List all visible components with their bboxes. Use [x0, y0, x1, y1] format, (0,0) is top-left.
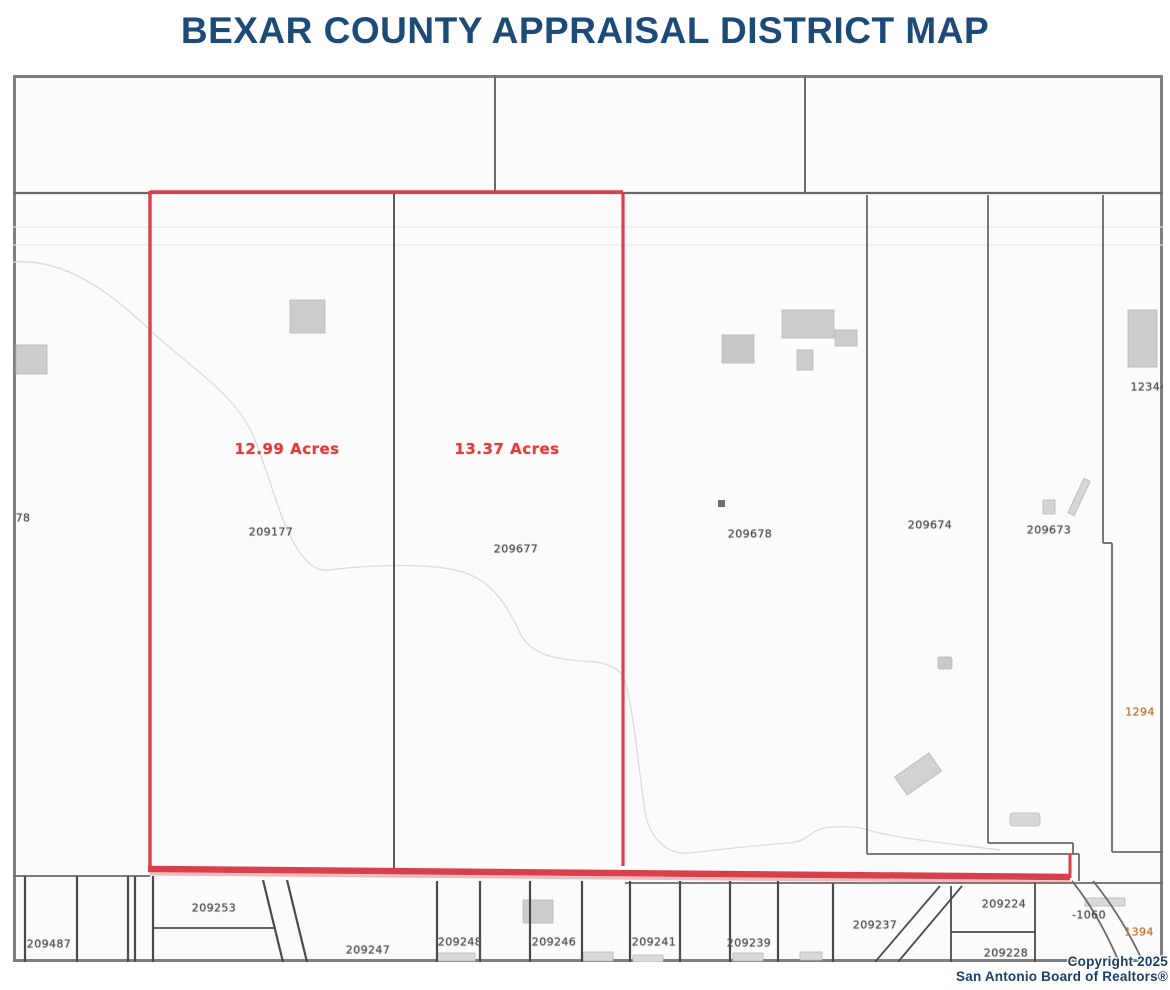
parcel-label-209247: 209247: [346, 944, 390, 957]
parcel-label-209246: 209246: [532, 936, 576, 949]
appraisal-district-map: 7820917720967720967820967420967312344129…: [13, 75, 1163, 962]
parcel-labels-layer: 7820917720967720967820967420967312344129…: [13, 75, 1163, 962]
acreage-label: 12.99 Acres: [234, 440, 339, 458]
parcel-label-209224: 209224: [982, 898, 1026, 911]
parcel-label-209177: 209177: [249, 526, 293, 539]
page: BEXAR COUNTY APPRAISAL DISTRICT MAP: [0, 0, 1170, 990]
parcel-label-209677: 209677: [494, 543, 538, 556]
copyright-notice: Copyright 2025 San Antonio Board of Real…: [956, 954, 1168, 984]
parcel-label-1294: 1294: [1125, 706, 1155, 719]
parcel-label-209241: 209241: [632, 936, 676, 949]
parcel-label-1394: 1394: [1124, 926, 1154, 939]
parcel-label-209678: 209678: [728, 528, 772, 541]
parcel-label--1060: -1060: [1072, 909, 1106, 922]
acreage-label: 13.37 Acres: [454, 440, 559, 458]
parcel-label-209253: 209253: [192, 902, 236, 915]
parcel-label-209248: 209248: [438, 936, 482, 949]
parcel-label-209237: 209237: [853, 919, 897, 932]
parcel-label-209239: 209239: [727, 937, 771, 950]
parcel-label-12344: 12344: [1131, 381, 1164, 394]
parcel-label-78: 78: [16, 512, 31, 525]
parcel-label-209673: 209673: [1027, 524, 1071, 537]
page-title: BEXAR COUNTY APPRAISAL DISTRICT MAP: [0, 10, 1170, 52]
parcel-label-209674: 209674: [908, 519, 952, 532]
parcel-label-209487: 209487: [27, 938, 71, 951]
copyright-line2: San Antonio Board of Realtors®: [956, 969, 1168, 984]
copyright-line1: Copyright 2025: [956, 954, 1168, 969]
